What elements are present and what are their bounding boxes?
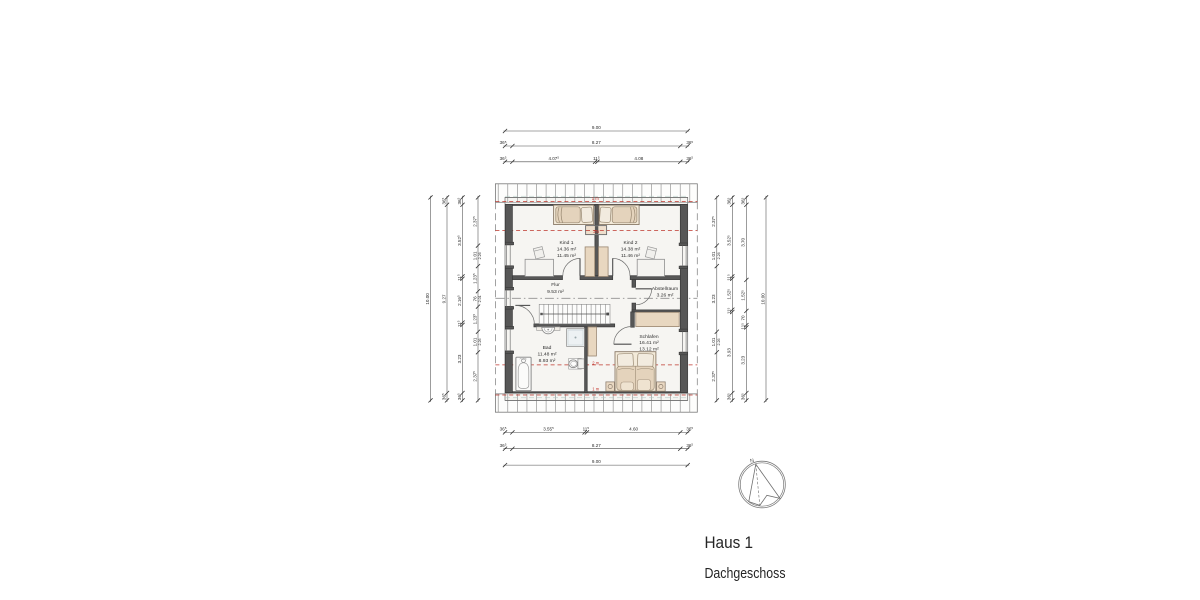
svg-text:2.375: 2.375: [711, 371, 716, 382]
svg-text:8.27: 8.27: [592, 443, 601, 448]
svg-text:365: 365: [500, 156, 507, 161]
svg-text:Flur: Flur: [551, 282, 560, 288]
svg-text:365: 365: [686, 156, 693, 161]
svg-text:365: 365: [500, 443, 507, 448]
svg-text:8.27: 8.27: [592, 140, 601, 145]
svg-text:Schlafen: Schlafen: [639, 334, 658, 340]
svg-text:70: 70: [741, 315, 746, 321]
svg-text:N: N: [750, 458, 755, 465]
svg-text:2.26: 2.26: [717, 252, 721, 259]
svg-text:4.08: 4.08: [634, 156, 643, 161]
svg-text:365: 365: [686, 426, 693, 431]
svg-text:365: 365: [686, 140, 693, 145]
svg-text:Kind 2: Kind 2: [623, 240, 637, 246]
svg-text:Abstellraum: Abstellraum: [652, 286, 679, 292]
svg-text:115: 115: [726, 307, 731, 314]
svg-text:1.01: 1.01: [472, 337, 477, 346]
svg-text:14.38 m²: 14.38 m²: [621, 246, 641, 252]
svg-text:9.27: 9.27: [441, 294, 446, 303]
svg-text:2m: 2m: [593, 229, 599, 234]
svg-text:16.41 m²: 16.41 m²: [639, 340, 659, 346]
svg-text:2.375: 2.375: [472, 216, 477, 227]
svg-text:11.46 m²: 11.46 m²: [621, 253, 640, 259]
svg-text:2.26: 2.26: [478, 338, 482, 345]
svg-text:9.00: 9.00: [592, 459, 601, 464]
svg-text:3.93: 3.93: [727, 348, 732, 357]
svg-text:2.375: 2.375: [711, 216, 716, 227]
svg-text:115: 115: [457, 320, 462, 327]
svg-text:10.00: 10.00: [425, 293, 430, 305]
svg-text:4.075: 4.075: [548, 156, 559, 161]
svg-text:2.26: 2.26: [478, 252, 482, 259]
svg-text:1.525: 1.525: [726, 289, 731, 300]
svg-text:3.23: 3.23: [711, 294, 716, 303]
svg-text:1.235: 1.235: [472, 314, 477, 325]
svg-text:Dachgeschoss: Dachgeschoss: [705, 565, 786, 582]
svg-text:11.48 m²: 11.48 m²: [537, 352, 556, 358]
svg-text:11.45 m²: 11.45 m²: [557, 253, 576, 259]
svg-text:365: 365: [686, 443, 693, 448]
svg-text:9.53 m²: 9.53 m²: [547, 289, 564, 295]
svg-text:14.36 m²: 14.36 m²: [557, 246, 577, 252]
svg-text:3.23: 3.23: [457, 354, 462, 363]
svg-text:76: 76: [472, 296, 477, 302]
svg-text:1.525: 1.525: [740, 290, 745, 301]
svg-text:3.555: 3.555: [543, 426, 554, 431]
svg-text:Kind 1: Kind 1: [559, 240, 573, 246]
svg-text:1.01: 1.01: [711, 251, 716, 260]
svg-text:365: 365: [500, 140, 507, 145]
svg-text:1.01: 1.01: [472, 251, 477, 260]
svg-text:4.60: 4.60: [629, 427, 638, 432]
svg-text:3.26 m²: 3.26 m²: [657, 292, 674, 298]
svg-text:2.26: 2.26: [717, 338, 721, 345]
svg-text:1 m: 1 m: [592, 387, 599, 392]
svg-text:10.00: 10.00: [760, 293, 765, 305]
svg-text:Bad: Bad: [543, 345, 552, 351]
svg-text:115: 115: [740, 323, 745, 330]
svg-text:2.375: 2.375: [472, 371, 477, 382]
svg-text:2 m: 2 m: [592, 360, 599, 365]
svg-text:1.01: 1.01: [711, 337, 716, 346]
svg-text:3.70: 3.70: [741, 237, 746, 246]
svg-text:13.12 m²: 13.12 m²: [639, 347, 659, 353]
svg-text:2.01: 2.01: [478, 295, 482, 302]
svg-text:3.525: 3.525: [726, 235, 731, 246]
svg-text:3.525: 3.525: [457, 235, 462, 246]
svg-text:9.00: 9.00: [592, 125, 601, 130]
svg-text:115: 115: [726, 274, 731, 281]
svg-text:8.93 m²: 8.93 m²: [539, 358, 556, 364]
svg-text:115: 115: [457, 274, 462, 281]
svg-text:365: 365: [500, 426, 507, 431]
svg-text:3.23: 3.23: [741, 355, 746, 364]
svg-text:1.235: 1.235: [472, 273, 477, 284]
svg-text:1 m: 1 m: [592, 196, 599, 201]
svg-text:2.165: 2.165: [457, 295, 462, 306]
svg-text:Haus 1: Haus 1: [705, 534, 754, 552]
